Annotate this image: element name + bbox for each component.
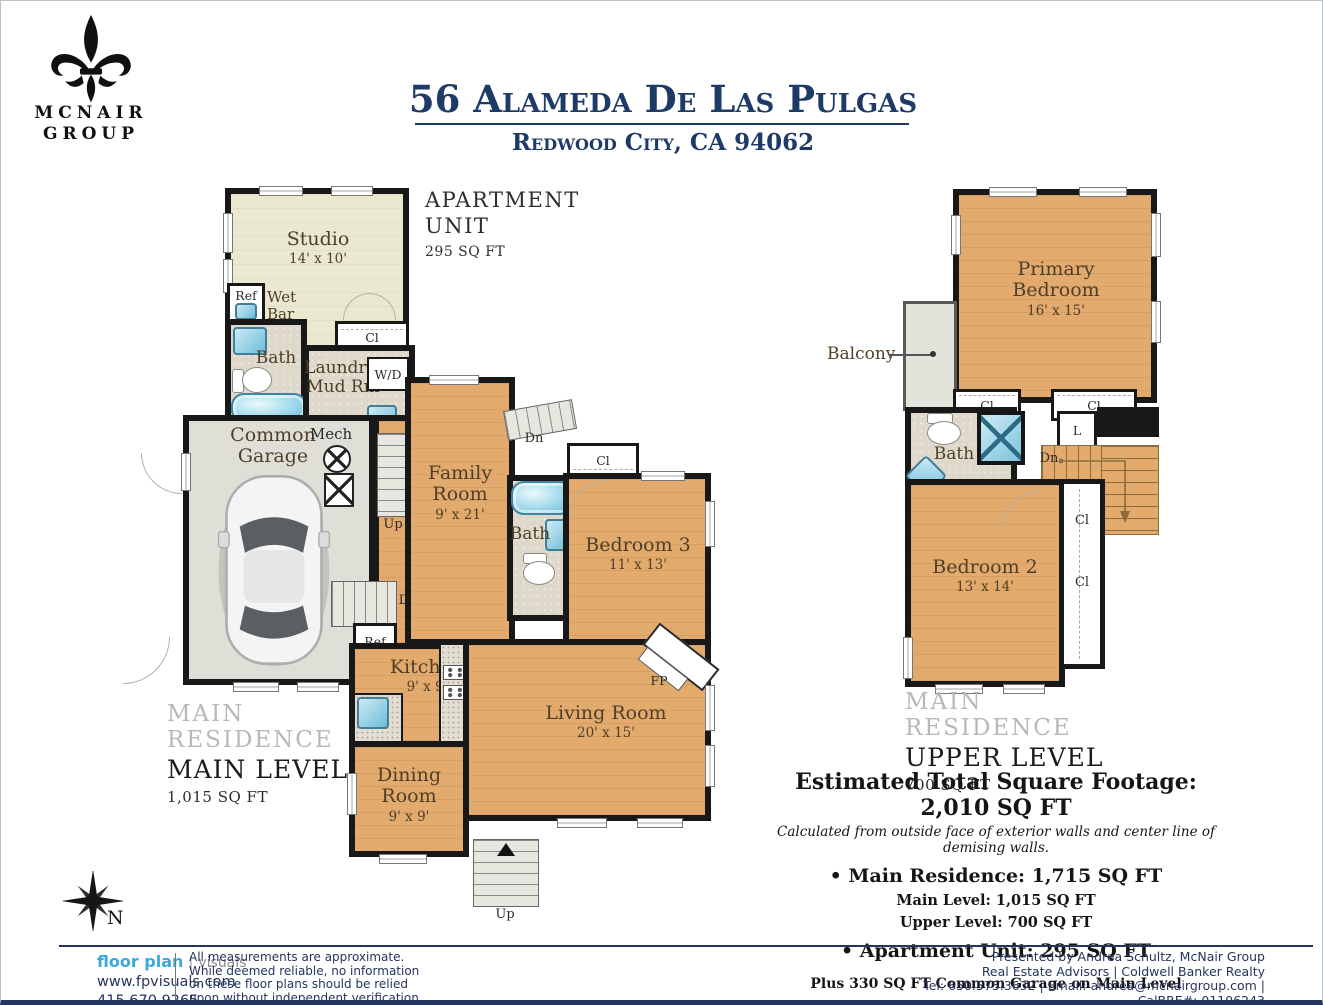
living-room-label: Living Room 20' x 15' [521,703,691,741]
apartment-callout-sqft: 295 SQ FT [425,244,595,262]
family-room-label: Family Room 9' x 21' [409,463,511,523]
window [637,818,683,828]
window [331,186,373,196]
window [989,187,1037,197]
window [259,186,303,196]
wet-bar-sink-icon [235,303,257,320]
dn-label: Dn [519,431,549,446]
stairs-down-main [331,581,397,627]
apartment-callout-line1: APARTMENT [425,187,595,213]
presented-by-line: Real Estate Advisors | Coldwell Banker R… [861,965,1265,980]
main-bath-label: Bath [507,525,553,544]
upper-level-label: UPPER LEVEL [905,743,1155,772]
shower-icon [977,411,1025,465]
window [1151,213,1161,257]
presented-by-line: Presented by Andrea Schultz, McNair Grou… [861,950,1265,965]
upper-level-sqft-line: Upper Level: 700 SQ FT [763,914,1229,931]
wall-fill [1097,407,1159,437]
closet-rod [1057,395,1131,396]
toilet-icon [523,561,555,585]
closet-linen: L [1057,411,1097,449]
up-label: Up [489,907,521,922]
disclaimer-line: upon without independent verification. [189,992,489,1005]
closet-label: Cl [1067,575,1097,590]
mcnair-fleur-de-lis-logo [43,13,139,105]
window [903,637,913,679]
mech-equipment-icon [324,473,354,507]
balcony-leader-dot [930,351,936,357]
window [379,854,427,864]
floor-plan-page: MCNAIR GROUP 56 Alameda De Las Pulgas Re… [0,0,1323,1005]
window [705,745,715,787]
brand-name: MCNAIR GROUP [21,103,161,146]
bedroom3-label: Bedroom 3 11' x 13' [573,535,703,573]
page-title: 56 Alameda De Las Pulgas [363,77,963,121]
car-icon [207,471,341,669]
brand-name-bottom: GROUP [21,124,161,145]
main-level-sqft-line: Main Level: 1,015 SQ FT [763,892,1229,909]
door-arc [141,453,182,494]
ref-label: Ref [235,288,256,303]
window [557,818,607,828]
window [641,471,685,481]
wet-bar-label: Wet Bar [267,289,311,323]
closet-rod [959,395,1015,396]
closet-label: Cl [365,330,379,345]
total-sqft-title: Estimated Total Square Footage: 2,010 SQ… [763,769,1229,821]
title-underline [415,123,909,125]
window [951,215,961,255]
closet-bedroom3: Cl [567,443,639,477]
fpvisuals-brand-primary: floor plan [97,952,183,971]
fp-label: FP [645,673,673,688]
disclaimer-line: All measurements are approximate. [189,951,489,965]
brand-name-top: MCNAIR [21,103,161,124]
apartment-bath-label: Bath [249,349,303,368]
main-level-title-block: MAIN RESIDENCE MAIN LEVEL 1,015 SQ FT [167,701,417,806]
upper-residence-label: MAIN RESIDENCE [905,689,1155,741]
window [223,213,233,253]
window [233,682,279,692]
bedroom2-label: Bedroom 2 13' x 14' [919,557,1051,595]
washer-dryer: W/D [367,357,409,391]
presented-by-block: Presented by Andrea Schultz, McNair Grou… [861,950,1265,1005]
window [429,375,479,385]
compass-north-label: N [107,907,124,929]
window [705,685,715,731]
presented-by-line: Tel: 650.575.3632 | Email: andrea@mcnair… [861,979,1265,1005]
mech-label: Mech [307,425,355,443]
toilet-icon [242,367,272,393]
toilet-icon [927,421,961,445]
balcony-leader-line [889,354,931,356]
closet-bedroom2-strip [1059,479,1105,669]
upper-bath-label: Bath [929,445,979,464]
entry-arrow-icon [497,843,515,856]
closet-rod [341,329,403,330]
balcony-label: Balcony [827,345,889,364]
main-residence-label: MAIN RESIDENCE [167,701,417,753]
page-subtitle: Redwood City, CA 94062 [363,129,963,156]
apartment-callout-line2: UNIT [425,213,595,239]
window [705,501,715,547]
footer-rule [59,945,1313,947]
apartment-unit-callout: APARTMENT UNIT 295 SQ FT [425,187,595,261]
main-residence-sqft: • Main Residence: 1,715 SQ FT [763,865,1229,887]
main-level-sqft: 1,015 SQ FT [167,788,417,806]
door-arc [123,637,170,684]
window [1151,301,1161,343]
disclaimer-line: While deemed reliable, no information [189,965,489,979]
window [1079,187,1127,197]
total-sqft-note: Calculated from outside face of exterior… [763,824,1229,856]
window [297,682,339,692]
disclaimer: All measurements are approximate. While … [189,951,489,1005]
mech-equipment-icon [323,445,351,473]
disclaimer-line: on these floor plans should be relied [189,978,489,992]
studio-label: Studio 14' x 10' [253,229,383,267]
closet-label: Cl [1067,513,1097,528]
footer-divider [175,953,176,1001]
closet-rod [573,469,633,470]
primary-bedroom-label: Primary Bedroom 16' x 15' [973,259,1139,319]
main-level-label: MAIN LEVEL [167,755,417,784]
window [181,453,191,491]
